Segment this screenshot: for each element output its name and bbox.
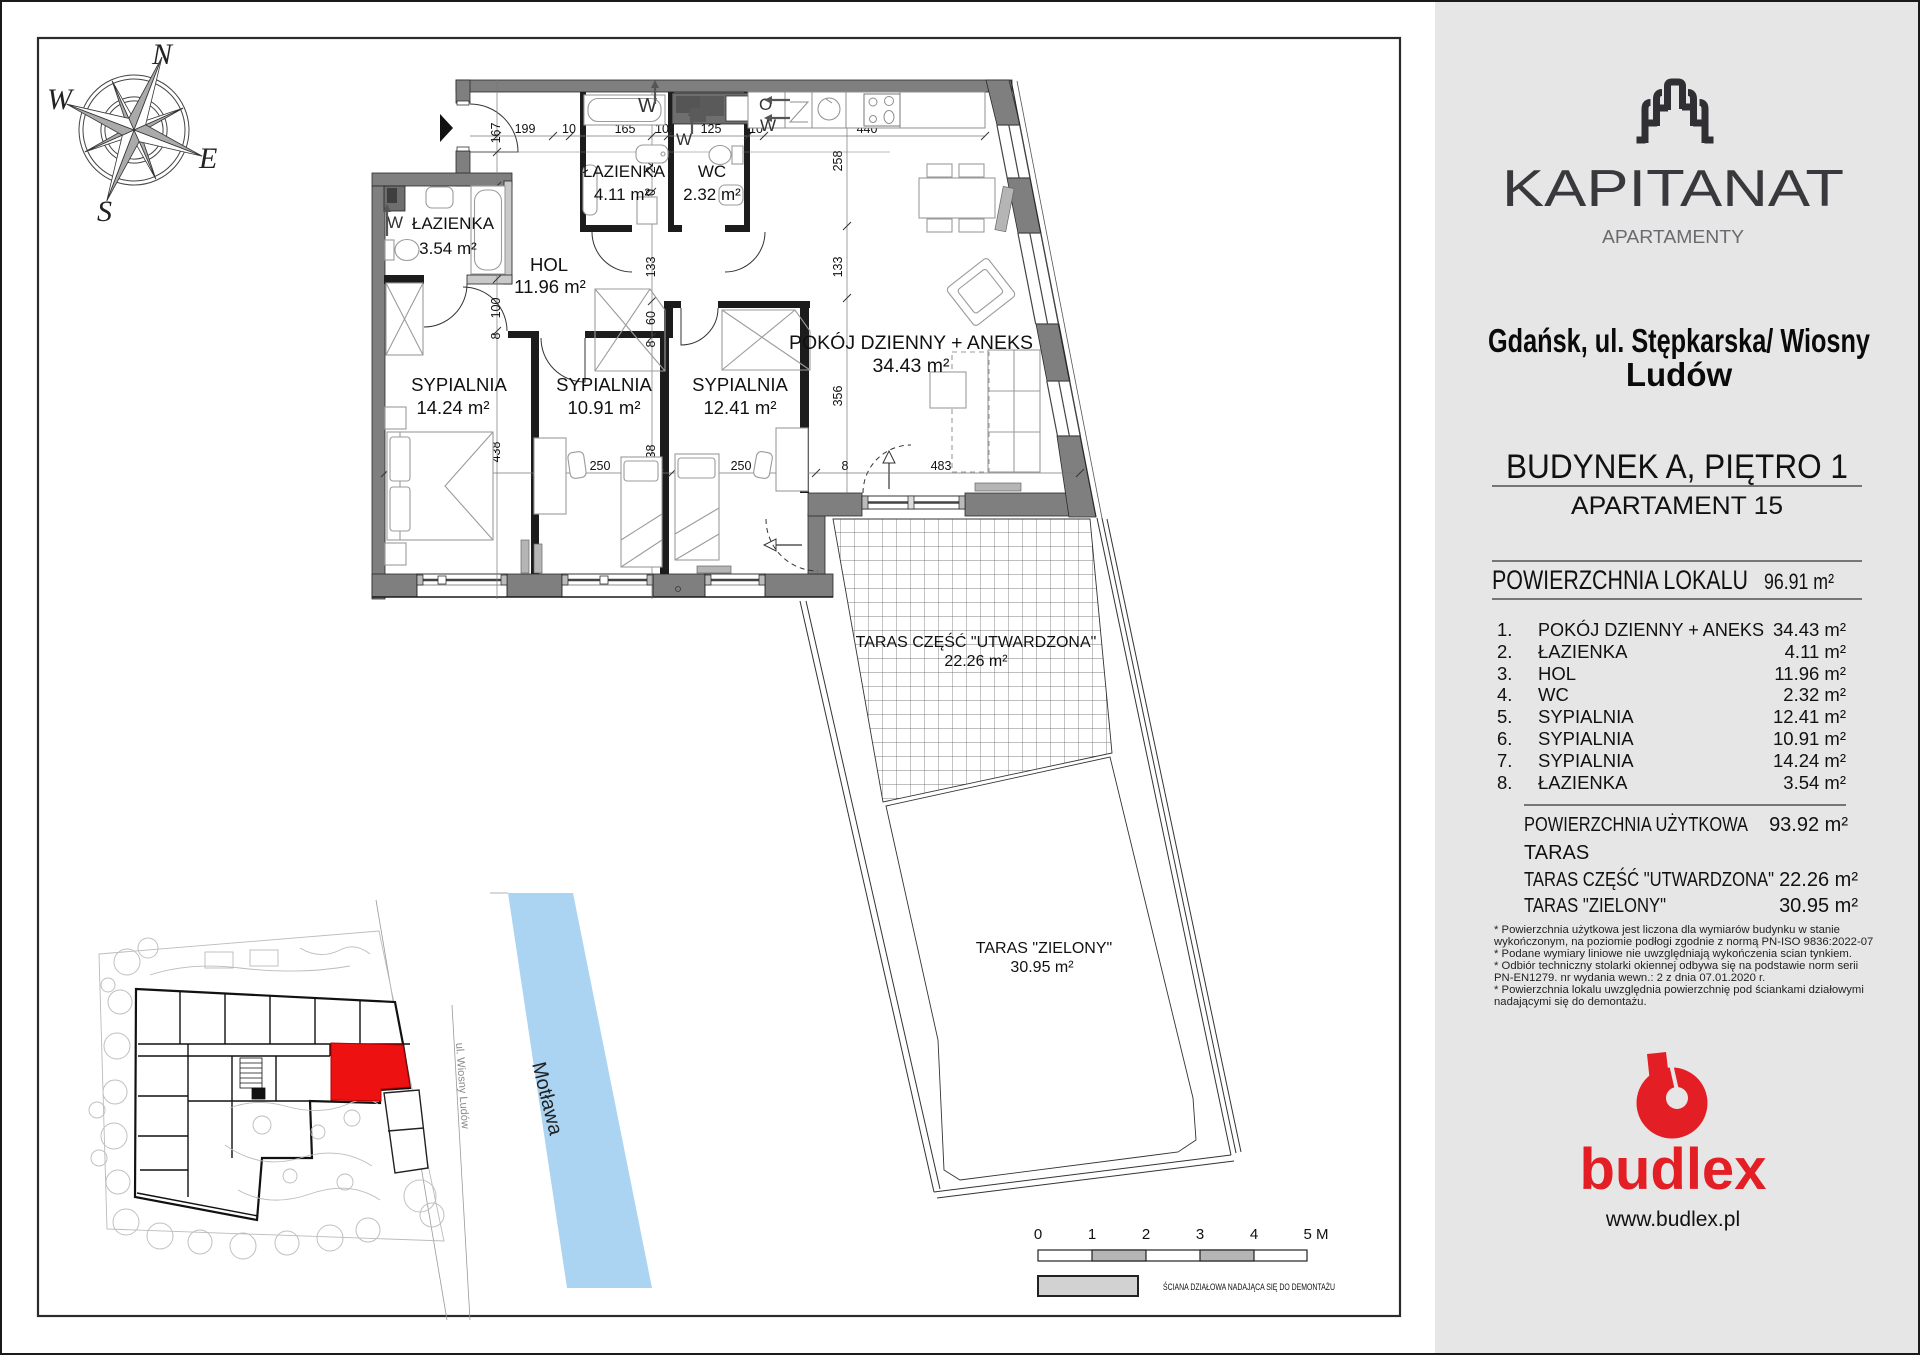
svg-text:* Powierzchnia użytkowa jest l: * Powierzchnia użytkowa jest liczona dla… [1494,924,1840,936]
svg-text:2.32 m²: 2.32 m² [1783,684,1846,705]
svg-text:W: W [47,83,75,116]
svg-text:483: 483 [931,459,952,473]
svg-text:133: 133 [831,257,845,278]
svg-text:E: E [198,142,217,175]
svg-text:Ludów: Ludów [1626,356,1733,393]
svg-text:60: 60 [644,311,658,325]
svg-text:SYPIALNIA: SYPIALNIA [411,374,507,395]
svg-text:N: N [151,38,174,71]
svg-text:258: 258 [831,151,845,172]
svg-text:2.32 m²: 2.32 m² [683,185,741,204]
svg-text:14.24 m²: 14.24 m² [1773,750,1846,771]
svg-text:SYPIALNIA: SYPIALNIA [692,374,788,395]
svg-text:5.: 5. [1497,706,1512,727]
svg-text:30.95 m²: 30.95 m² [1779,895,1858,917]
svg-text:3.: 3. [1497,663,1512,684]
svg-text:93.92 m²: 93.92 m² [1769,814,1848,836]
svg-text:1.: 1. [1497,619,1512,640]
svg-text:1: 1 [1088,1226,1096,1243]
svg-text:TARAS CZĘŚĆ "UTWARDZONA": TARAS CZĘŚĆ "UTWARDZONA" [856,632,1097,651]
svg-text:4.11 m²: 4.11 m² [1785,641,1846,662]
svg-text:4: 4 [1250,1226,1258,1243]
svg-text:2: 2 [1142,1226,1150,1243]
svg-text:10.91 m²: 10.91 m² [1773,728,1846,749]
svg-text:100: 100 [489,298,503,319]
svg-text:34.43 m²: 34.43 m² [1773,619,1846,640]
svg-text:POWIERZCHNIA UŻYTKOWA: POWIERZCHNIA UŻYTKOWA [1524,813,1749,836]
svg-text:199: 199 [515,122,536,136]
svg-text:3.54 m²: 3.54 m² [1783,772,1846,793]
svg-text:22.26 m²: 22.26 m² [944,653,1008,670]
svg-text:34.43 m²: 34.43 m² [873,355,950,377]
svg-text:POWIERZCHNIA LOKALU: POWIERZCHNIA LOKALU [1492,565,1748,595]
svg-text:8: 8 [489,332,503,339]
svg-text:nadającymi się do demontażu.: nadającymi się do demontażu. [1494,996,1647,1008]
svg-text:8.: 8. [1497,772,1512,793]
svg-text:96.91 m²: 96.91 m² [1764,569,1834,594]
svg-text:10: 10 [562,122,576,136]
svg-text:2.: 2. [1497,641,1512,662]
svg-text:TARAS CZĘŚĆ "UTWARDZONA": TARAS CZĘŚĆ "UTWARDZONA" [1524,867,1774,891]
svg-text:ŁAZIENKA: ŁAZIENKA [1538,772,1628,793]
svg-text:8: 8 [842,459,849,473]
svg-text:budlex: budlex [1580,1137,1767,1202]
svg-text:HOL: HOL [530,254,568,275]
svg-text:167: 167 [489,123,503,144]
svg-text:KAPITANAT: KAPITANAT [1502,160,1844,218]
svg-text:Gdańsk, ul. Stępkarska/ Wiosny: Gdańsk, ul. Stępkarska/ Wiosny [1488,322,1870,359]
svg-text:7.: 7. [1497,750,1512,771]
svg-text:ŁAZIENKA: ŁAZIENKA [583,162,666,181]
svg-text:22.26 m²: 22.26 m² [1779,869,1858,891]
svg-text:WC: WC [698,162,726,181]
svg-text:* Powierzchnia lokalu uwzględn: * Powierzchnia lokalu uwzględnia powierz… [1494,984,1864,996]
svg-text:* Odbiór techniczny stolarki o: * Odbiór techniczny stolarki okiennej od… [1494,960,1858,972]
svg-text:HOL: HOL [1538,663,1576,684]
svg-text:TARAS: TARAS [1524,842,1589,864]
svg-text:APARTAMENT 15: APARTAMENT 15 [1571,492,1783,520]
svg-text:PN-EN1279. nr wydania wewn.: 2: PN-EN1279. nr wydania wewn.: 2 z dnia 07… [1494,972,1765,984]
svg-text:SYPIALNIA: SYPIALNIA [1538,750,1634,771]
svg-text:SYPIALNIA: SYPIALNIA [1538,728,1634,749]
svg-text:* Podane wymiary liniowe nie u: * Podane wymiary liniowe nie uwzględniaj… [1494,948,1852,960]
svg-text:3: 3 [1196,1226,1204,1243]
svg-text:0: 0 [1034,1226,1042,1243]
svg-text:APARTAMENTY: APARTAMENTY [1602,227,1744,247]
svg-text:BUDYNEK A, PIĘTRO 1: BUDYNEK A, PIĘTRO 1 [1506,448,1848,486]
svg-text:250: 250 [731,459,752,473]
svg-text:6.: 6. [1497,728,1512,749]
svg-text:4.: 4. [1497,684,1512,705]
svg-text:12.41 m²: 12.41 m² [1773,706,1846,727]
svg-text:30.95 m²: 30.95 m² [1010,959,1074,976]
svg-text:356: 356 [831,386,845,407]
svg-text:www.budlex.pl: www.budlex.pl [1605,1208,1740,1231]
svg-text:S: S [97,195,112,228]
svg-text:TARAS "ZIELONY": TARAS "ZIELONY" [976,940,1112,957]
svg-text:ŚCIANA DZIAŁOWA NADAJĄCA SIĘ D: ŚCIANA DZIAŁOWA NADAJĄCA SIĘ DO DEMONTAŻ… [1163,1281,1335,1293]
svg-text:SYPIALNIA: SYPIALNIA [1538,706,1634,727]
svg-text:POKÓJ DZIENNY + ANEKS: POKÓJ DZIENNY + ANEKS [789,331,1033,354]
svg-text:W: W [387,213,403,232]
svg-text:TARAS "ZIELONY": TARAS "ZIELONY" [1524,895,1666,917]
svg-text:14.24 m²: 14.24 m² [416,397,489,418]
svg-text:11.96 m²: 11.96 m² [1774,663,1846,684]
svg-text:11.96 m²: 11.96 m² [514,276,586,297]
svg-text:SYPIALNIA: SYPIALNIA [556,374,652,395]
svg-text:8: 8 [644,340,658,347]
svg-text:250: 250 [590,459,611,473]
svg-text:ŁAZIENKA: ŁAZIENKA [412,214,495,233]
svg-text:WC: WC [1538,684,1569,705]
svg-text:3.54 m²: 3.54 m² [419,239,477,258]
svg-text:12.41 m²: 12.41 m² [703,397,776,418]
svg-text:125: 125 [701,122,722,136]
svg-text:wykończonym, na poziomie podło: wykończonym, na poziomie podłogi zgodnie… [1493,936,1873,948]
svg-text:W: W [676,130,692,149]
svg-text:133: 133 [644,257,658,278]
svg-text:10.91 m²: 10.91 m² [567,397,640,418]
svg-text:4.11 m²: 4.11 m² [594,185,651,204]
svg-text:5 M: 5 M [1303,1226,1328,1243]
svg-text:ŁAZIENKA: ŁAZIENKA [1538,641,1628,662]
svg-text:POKÓJ DZIENNY + ANEKS: POKÓJ DZIENNY + ANEKS [1538,619,1764,640]
